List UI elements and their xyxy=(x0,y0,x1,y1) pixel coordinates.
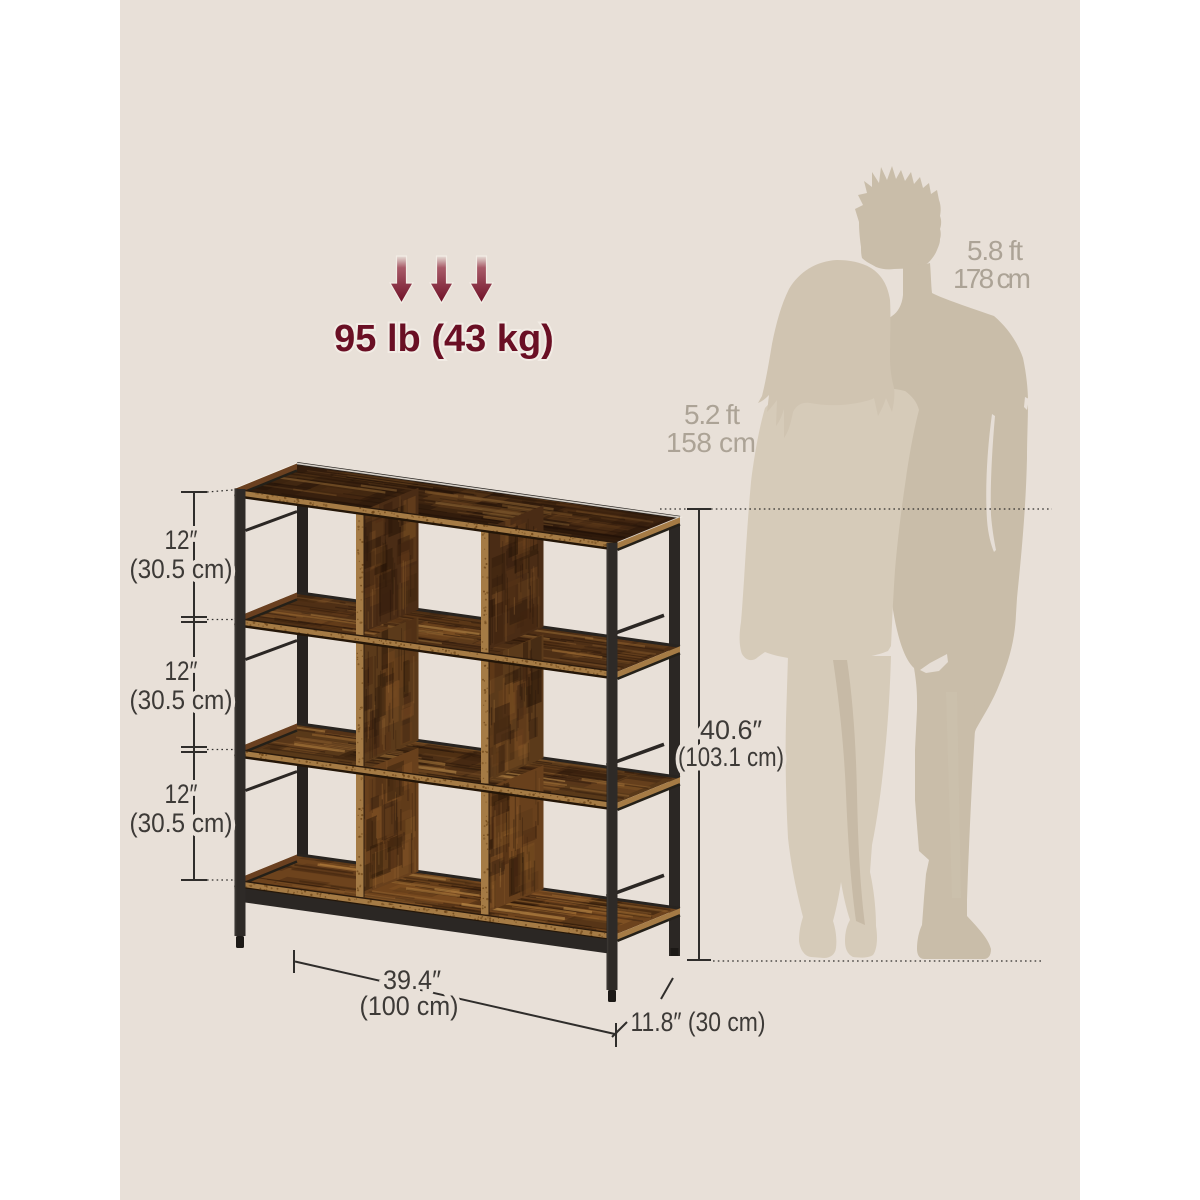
svg-text:(30.5 cm): (30.5 cm) xyxy=(130,685,233,715)
svg-text:178 cm: 178 cm xyxy=(953,263,1031,294)
svg-text:5.2 ft: 5.2 ft xyxy=(684,399,740,430)
svg-text:95 lb (43 kg): 95 lb (43 kg) xyxy=(334,318,554,360)
svg-text:5.8 ft: 5.8 ft xyxy=(967,235,1023,266)
svg-text:158 cm: 158 cm xyxy=(666,427,756,458)
svg-text:(100 cm): (100 cm) xyxy=(360,991,459,1021)
svg-text:(30.5 cm): (30.5 cm) xyxy=(130,808,233,838)
svg-text:12″: 12″ xyxy=(165,779,198,809)
svg-text:11.8″ (30 cm): 11.8″ (30 cm) xyxy=(631,1007,766,1037)
svg-text:(103.1 cm): (103.1 cm) xyxy=(678,742,784,772)
svg-text:12″: 12″ xyxy=(165,656,198,686)
svg-text:(30.5 cm): (30.5 cm) xyxy=(130,554,233,584)
svg-text:12″: 12″ xyxy=(165,525,198,555)
svg-text:40.6″: 40.6″ xyxy=(700,715,762,745)
